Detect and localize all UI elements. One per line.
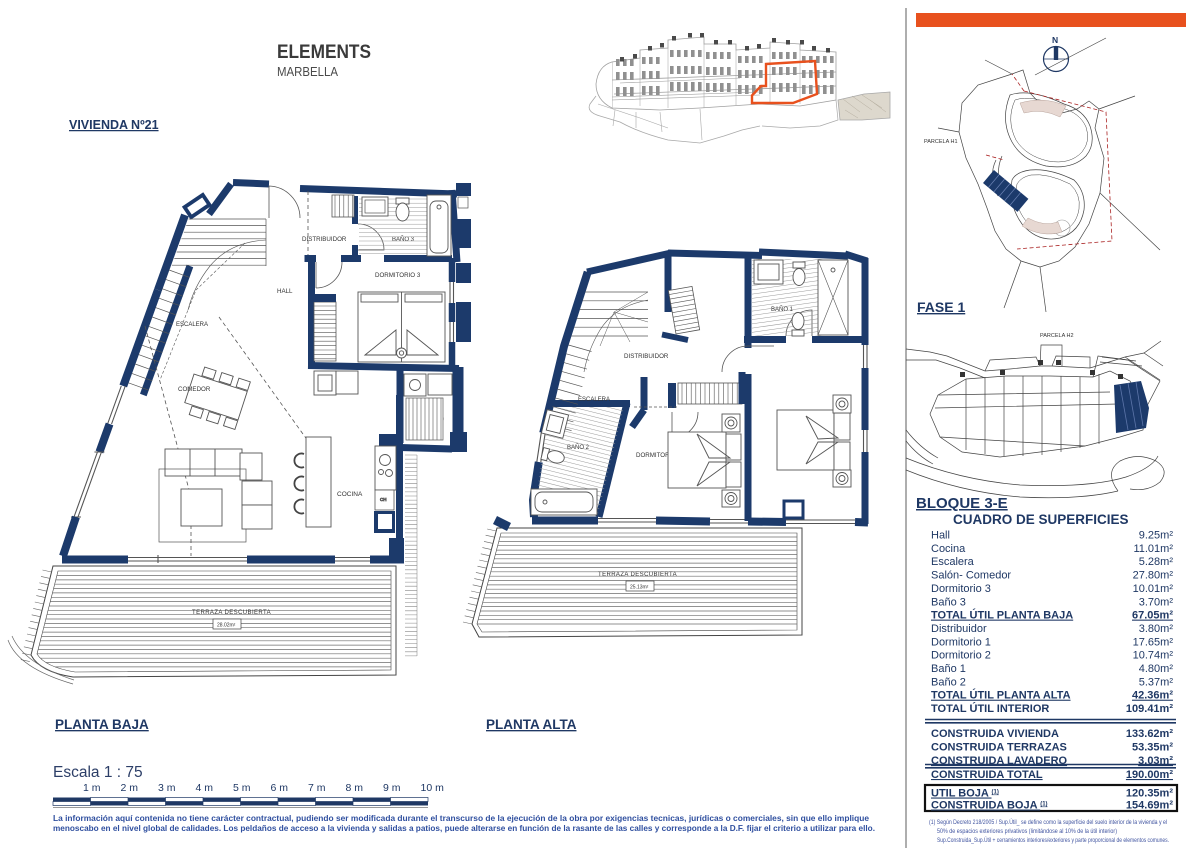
svg-text:5.28m²: 5.28m² <box>1139 556 1174 568</box>
svg-text:3.80m²: 3.80m² <box>1139 623 1174 635</box>
svg-text:COCINA: COCINA <box>337 491 363 498</box>
svg-text:10 m: 10 m <box>421 782 445 794</box>
svg-text:CH: CH <box>380 497 387 502</box>
svg-text:5 m: 5 m <box>233 782 251 794</box>
svg-text:3 m: 3 m <box>158 782 176 794</box>
svg-text:28.02m²: 28.02m² <box>217 623 236 629</box>
svg-text:CONSTRUIDA VIVIENDA: CONSTRUIDA VIVIENDA <box>931 728 1059 740</box>
svg-text:133.62m²: 133.62m² <box>1126 728 1173 740</box>
svg-text:17.65m²: 17.65m² <box>1133 636 1174 648</box>
svg-text:TERRAZA DESCUBIERTA: TERRAZA DESCUBIERTA <box>192 610 271 616</box>
svg-text:4 m: 4 m <box>196 782 214 794</box>
svg-text:2 m: 2 m <box>121 782 139 794</box>
svg-text:DISTRIBUIDOR: DISTRIBUIDOR <box>302 236 347 243</box>
svg-text:3.70m²: 3.70m² <box>1139 596 1174 608</box>
svg-text:53.35m²: 53.35m² <box>1132 742 1173 754</box>
svg-text:CONSTRUIDA TERRAZAS: CONSTRUIDA TERRAZAS <box>931 742 1067 754</box>
svg-text:Escalera: Escalera <box>931 556 975 568</box>
svg-text:ELEMENTS: ELEMENTS <box>277 41 371 63</box>
svg-text:Hall: Hall <box>931 530 950 542</box>
svg-text:Baño 1: Baño 1 <box>931 663 966 675</box>
svg-text:190.00m²: 190.00m² <box>1126 769 1173 781</box>
svg-text:TERRAZA DESCUBIERTA: TERRAZA DESCUBIERTA <box>598 572 677 578</box>
svg-text:MARBELLA: MARBELLA <box>277 64 338 79</box>
svg-text:CUADRO DE SUPERFICIES: CUADRO DE SUPERFICIES <box>953 512 1129 527</box>
svg-text:PARCELA H2: PARCELA H2 <box>1040 333 1074 339</box>
svg-text:Dormitorio 2: Dormitorio 2 <box>931 650 991 662</box>
svg-text:Baño 3: Baño 3 <box>931 596 966 608</box>
svg-text:42.36m²: 42.36m² <box>1132 690 1173 702</box>
svg-text:Salón- Comedor: Salón- Comedor <box>931 570 1011 582</box>
svg-text:Cocina: Cocina <box>931 543 966 555</box>
svg-text:27.80m²: 27.80m² <box>1133 570 1174 582</box>
svg-text:Distribuidor: Distribuidor <box>931 623 987 635</box>
svg-text:DORMITORIO 3: DORMITORIO 3 <box>375 272 421 279</box>
svg-text:1 m: 1 m <box>83 782 101 794</box>
svg-text:TOTAL ÚTIL PLANTA BAJA: TOTAL ÚTIL PLANTA BAJA <box>931 609 1073 622</box>
svg-text:Dormitorio 1: Dormitorio 1 <box>931 636 991 648</box>
svg-text:10.74m²: 10.74m² <box>1133 650 1174 662</box>
svg-text:VIVIENDA Nº21: VIVIENDA Nº21 <box>69 118 159 132</box>
svg-text:4.80m²: 4.80m² <box>1139 663 1174 675</box>
svg-text:154.69m²: 154.69m² <box>1126 800 1173 812</box>
svg-text:BLOQUE 3-E: BLOQUE 3-E <box>916 495 1008 512</box>
svg-text:6 m: 6 m <box>271 782 289 794</box>
svg-text:67.05m²: 67.05m² <box>1132 610 1173 622</box>
svg-text:120.35m²: 120.35m² <box>1126 788 1173 800</box>
svg-text:50% de espacios exteriores pri: 50% de espacios exteriores privativos (l… <box>937 828 1117 835</box>
svg-text:11.01m²: 11.01m² <box>1133 543 1173 555</box>
svg-text:TOTAL ÚTIL INTERIOR: TOTAL ÚTIL INTERIOR <box>931 702 1049 715</box>
svg-text:HALL: HALL <box>277 288 293 295</box>
svg-text:10.01m²: 10.01m² <box>1133 583 1174 595</box>
svg-text:FASE 1: FASE 1 <box>917 299 965 315</box>
svg-text:Dormitorio 3: Dormitorio 3 <box>931 583 991 595</box>
svg-text:9 m: 9 m <box>383 782 401 794</box>
svg-text:9.25m²: 9.25m² <box>1139 530 1174 542</box>
svg-text:5.37m²: 5.37m² <box>1139 676 1174 688</box>
svg-text:ESCALERA: ESCALERA <box>176 322 208 328</box>
svg-text:TOTAL ÚTIL PLANTA ALTA: TOTAL ÚTIL PLANTA ALTA <box>931 689 1071 702</box>
svg-text:COMEDOR: COMEDOR <box>178 386 211 393</box>
svg-text:DISTRIBUIDOR: DISTRIBUIDOR <box>624 353 669 360</box>
svg-text:Escala 1 : 75: Escala 1 : 75 <box>53 764 143 781</box>
svg-text:PLANTA BAJA: PLANTA BAJA <box>55 717 149 732</box>
svg-text:menoscabo en el nivel global d: menoscabo en el nivel global de calidade… <box>53 823 875 833</box>
svg-text:109.41m²: 109.41m² <box>1126 703 1173 715</box>
svg-text:ESCALERA: ESCALERA <box>578 397 610 403</box>
svg-text:Sup.Construida_Sup.Útil + cerr: Sup.Construida_Sup.Útil + cerramientos i… <box>937 835 1169 844</box>
svg-text:Baño 2: Baño 2 <box>931 676 966 688</box>
svg-text:La información aquí contenida: La información aquí contenida no tiene c… <box>53 813 869 823</box>
svg-text:UTIL BOJA (1): UTIL BOJA (1) <box>931 788 999 800</box>
svg-text:PLANTA ALTA: PLANTA ALTA <box>486 717 577 732</box>
svg-text:PARCELA H1: PARCELA H1 <box>924 139 958 145</box>
svg-text:CONSTRUIDA TOTAL: CONSTRUIDA TOTAL <box>931 769 1043 781</box>
svg-text:N: N <box>1052 35 1058 45</box>
svg-text:8 m: 8 m <box>346 782 364 794</box>
svg-text:CONSTRUIDA BOJA (1): CONSTRUIDA BOJA (1) <box>931 800 1048 812</box>
svg-text:25.13m²: 25.13m² <box>630 585 649 591</box>
svg-text:(1) Según Decreto 218/2005 / S: (1) Según Decreto 218/2005 / Sup.Útil_ s… <box>929 817 1167 826</box>
svg-text:7 m: 7 m <box>308 782 326 794</box>
